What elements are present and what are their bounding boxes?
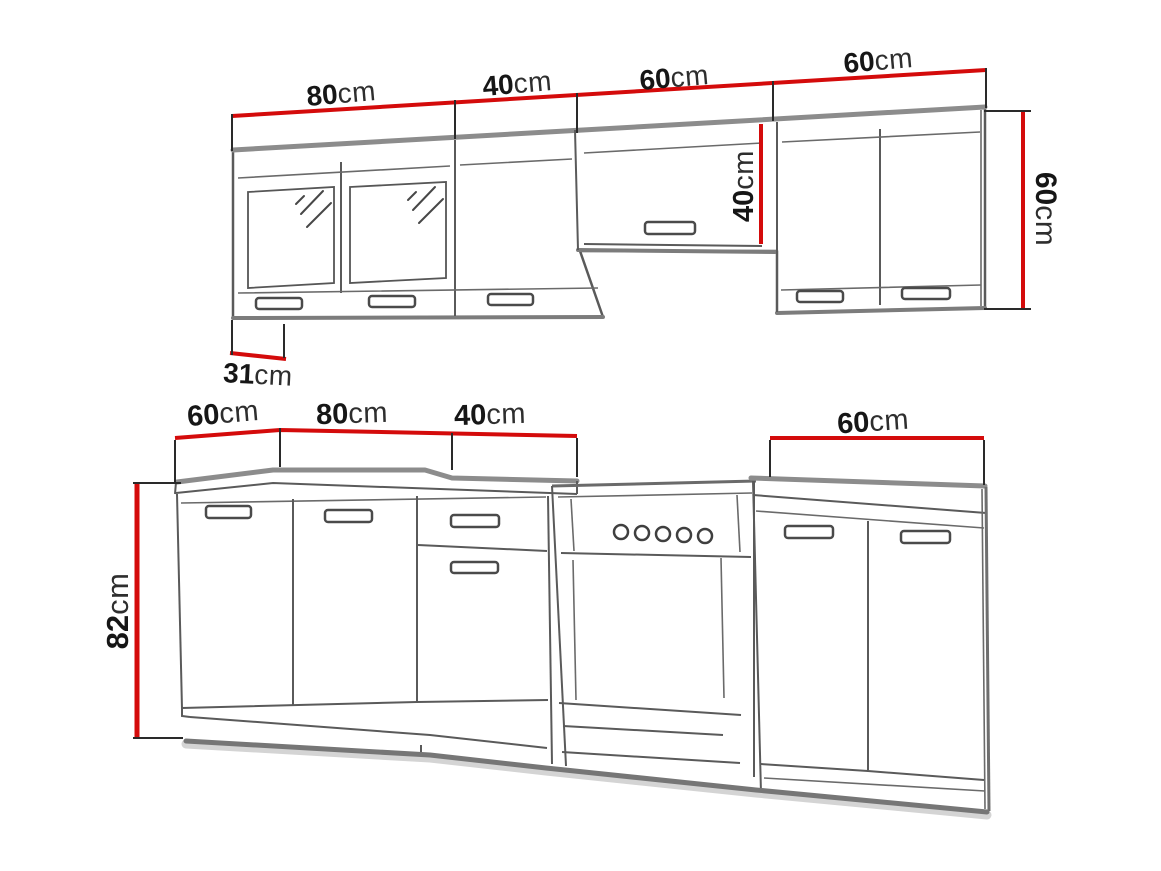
dimension-value: 60 <box>186 398 221 433</box>
cooker-left-edge <box>552 486 566 766</box>
dimension-unit: cm <box>100 573 135 615</box>
base-doors-top-line <box>181 497 546 503</box>
upper-cabinets-outline <box>233 107 985 318</box>
door-handle <box>785 526 833 538</box>
drawer-handle <box>451 515 499 527</box>
base-height-label: 82cm <box>100 573 135 650</box>
upper-height-label: 60cm <box>1029 172 1062 246</box>
dimension-value: 60 <box>842 45 876 79</box>
kitchen-dimensions-svg: 80cm 40cm 60cm 60cm 31cm 40cm 60cm 60cm … <box>0 0 1161 871</box>
dimension-unit: cm <box>873 42 914 76</box>
lower-dimension-red-lines <box>137 430 984 738</box>
cooker-drawing <box>552 481 756 777</box>
dimension-unit: cm <box>254 359 294 392</box>
door-handle <box>451 562 498 573</box>
upper-width-label-1: 80cm <box>305 75 377 112</box>
dimension-unit: cm <box>486 398 527 431</box>
worktop-front-edge <box>176 483 577 494</box>
base-left-side-edge <box>177 494 182 709</box>
cooker-bottom-edge <box>562 752 740 763</box>
dimension-value: 82 <box>100 615 135 649</box>
hood-underside-edge <box>578 250 775 252</box>
control-panel-right-line <box>737 495 740 552</box>
lower-width-dimension-line-left <box>175 430 577 438</box>
oven-knob <box>656 527 670 541</box>
right-doors-bottom-line <box>761 764 984 780</box>
floor-shadow <box>186 744 987 815</box>
dimension-unit: cm <box>728 150 760 190</box>
right-plinth-line <box>764 778 985 791</box>
lower-dimension-witness-lines <box>133 428 984 738</box>
base-right-cabinet <box>751 478 989 811</box>
oven-door-right-frame <box>721 558 724 698</box>
cooker-top-edge <box>552 481 756 486</box>
drawer-bottom-line <box>418 545 547 551</box>
dimension-value: 40 <box>454 399 487 432</box>
oven-knobs <box>614 525 712 543</box>
lower-width-label-3: 40cm <box>454 398 527 432</box>
door-handle <box>901 531 950 543</box>
door-handle <box>369 296 415 307</box>
oven-drawer-line-1 <box>559 703 741 715</box>
right-cabinet-right-edge <box>986 487 989 811</box>
oven-door-left-frame <box>573 560 576 700</box>
dimension-value: 60 <box>638 62 672 96</box>
upper-bottom-edge-left <box>233 317 603 318</box>
hood-flip-door-handle <box>645 222 695 234</box>
base-doors-bottom-line <box>182 700 548 708</box>
drawer-unit-right-edge <box>548 496 552 764</box>
door-handle <box>797 291 843 302</box>
oven-knob <box>635 526 649 540</box>
worktop-back-edge <box>177 470 577 482</box>
control-panel-bottom-line <box>561 553 751 557</box>
upper-width-label-2: 40cm <box>481 65 553 102</box>
dimension-value: 31 <box>222 357 255 390</box>
oven-knob <box>614 525 628 539</box>
door-handle <box>206 506 251 518</box>
cooker-top-inner-line <box>558 493 752 497</box>
right-worktop-front-edge <box>753 495 986 513</box>
lower-width-label-1: 60cm <box>186 395 260 433</box>
upper-cabinets-drawing <box>233 107 985 318</box>
dimension-value: 60 <box>836 406 870 440</box>
dimension-unit: cm <box>669 59 710 93</box>
kitchen-dimension-diagram: 80cm 40cm 60cm 60cm 31cm 40cm 60cm 60cm … <box>0 0 1161 871</box>
dimension-unit: cm <box>336 75 377 109</box>
dimension-value: 60 <box>1029 172 1062 205</box>
dimension-value: 80 <box>316 398 349 431</box>
door-handle <box>256 298 302 309</box>
dimension-unit: cm <box>512 65 553 99</box>
dimension-value: 40 <box>728 190 760 222</box>
door-handle <box>488 294 533 305</box>
oven-knob <box>698 529 712 543</box>
hood-height-label: 40cm <box>728 150 760 222</box>
oven-drawer-line-2 <box>563 726 723 735</box>
oven-knob <box>677 528 691 542</box>
upper-depth-label: 31cm <box>222 357 293 392</box>
upper-width-label-4: 60cm <box>842 42 914 79</box>
dimension-unit: cm <box>348 397 389 430</box>
lower-width-label-4: 60cm <box>836 404 910 441</box>
dimension-unit: cm <box>1029 205 1062 246</box>
right-cabinet-right-inner-edge <box>982 489 985 809</box>
control-panel-left-line <box>571 499 574 551</box>
dimension-value: 80 <box>305 78 339 112</box>
dimension-unit: cm <box>868 404 910 439</box>
right-worktop-back-edge <box>751 478 985 486</box>
door-handle <box>902 288 950 299</box>
upper-width-label-3: 60cm <box>638 59 710 96</box>
dimension-value: 40 <box>481 68 515 102</box>
base-cabinets-drawing <box>175 470 989 815</box>
dimension-unit: cm <box>218 395 260 430</box>
door-handle <box>325 510 372 522</box>
plinth-step <box>182 708 190 717</box>
lower-width-label-2: 80cm <box>316 397 389 431</box>
